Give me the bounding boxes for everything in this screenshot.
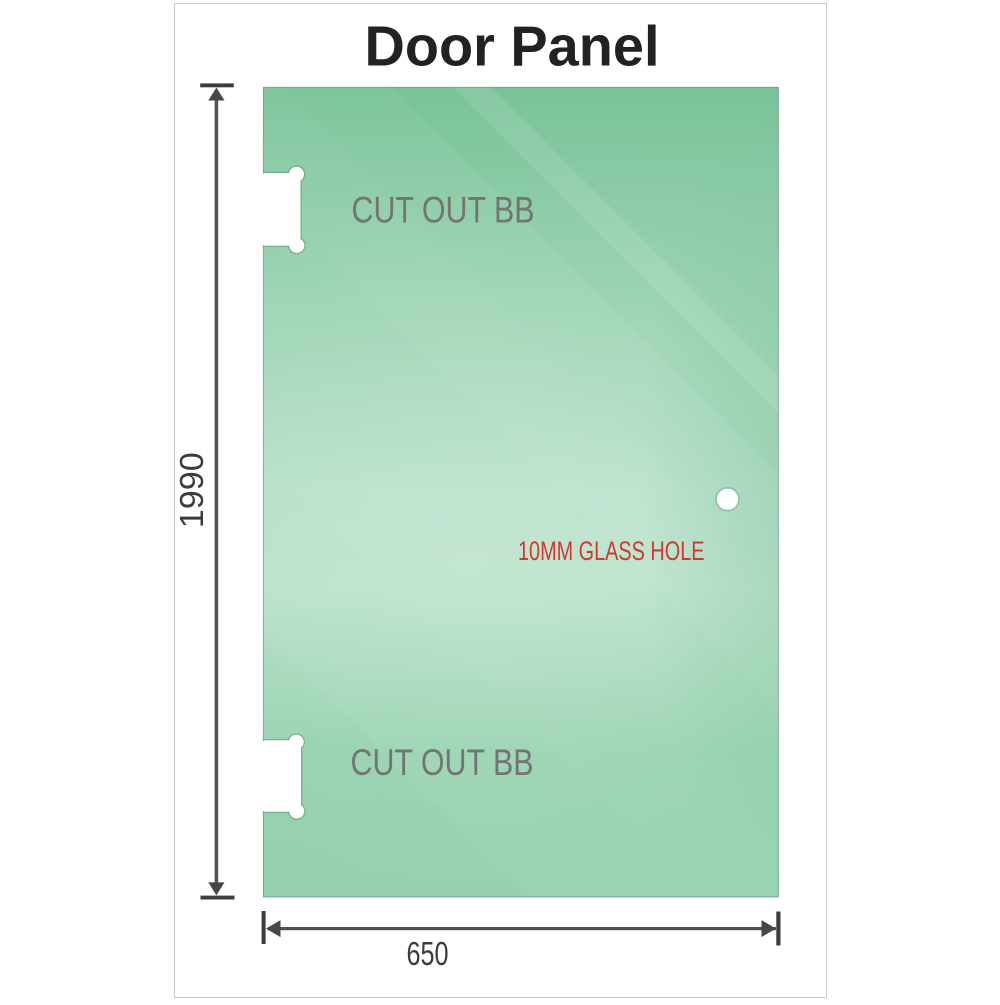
svg-text:CUT OUT BB: CUT OUT BB (351, 742, 534, 783)
svg-text:CUT OUT BB: CUT OUT BB (352, 189, 535, 230)
svg-text:Door Panel: Door Panel (365, 15, 660, 79)
svg-text:650: 650 (407, 936, 449, 973)
svg-text:10MM GLASS HOLE: 10MM GLASS HOLE (518, 536, 705, 566)
svg-text:1990: 1990 (174, 452, 211, 528)
